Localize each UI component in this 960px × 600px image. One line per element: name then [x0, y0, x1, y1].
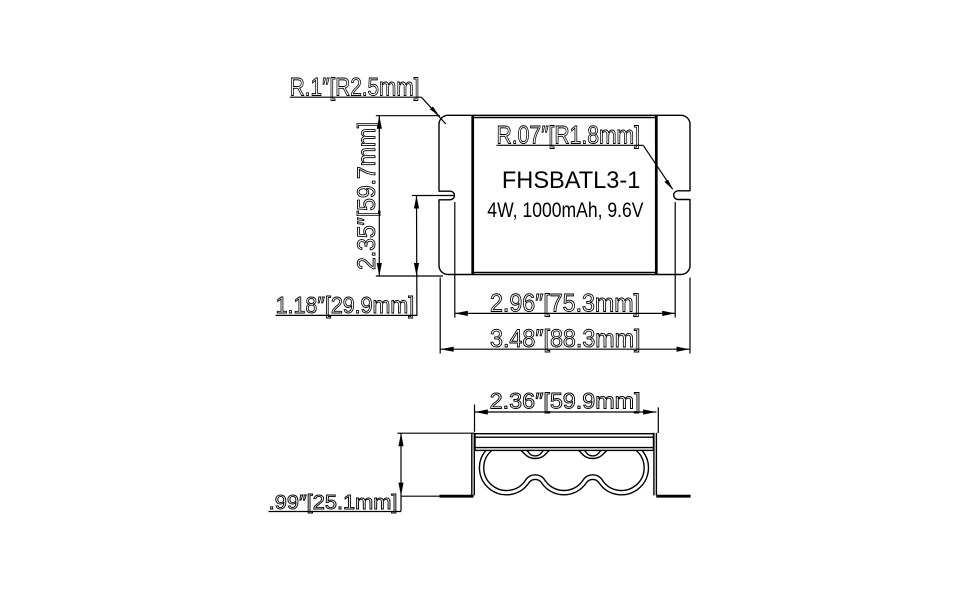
- svg-text:4W, 1000mAh, 9.6V: 4W, 1000mAh, 9.6V: [487, 198, 644, 222]
- svg-text:3.48″[88.3mm]: 3.48″[88.3mm]: [490, 325, 641, 353]
- svg-text:FHSBATL3-1: FHSBATL3-1: [502, 167, 641, 194]
- svg-text:R.07″[R1.8mm]: R.07″[R1.8mm]: [497, 122, 641, 150]
- svg-text:2.96″[75.3mm]: 2.96″[75.3mm]: [490, 290, 640, 318]
- svg-text:2.36″[59.9mm]: 2.36″[59.9mm]: [490, 388, 641, 413]
- svg-text:R.1″[R2.5mm]: R.1″[R2.5mm]: [290, 74, 420, 102]
- svg-text:.99″[25.1mm]: .99″[25.1mm]: [269, 491, 398, 514]
- svg-text:2.35″[59.7mm]: 2.35″[59.7mm]: [353, 122, 381, 270]
- svg-text:1.18″[29.9mm]: 1.18″[29.9mm]: [276, 292, 415, 318]
